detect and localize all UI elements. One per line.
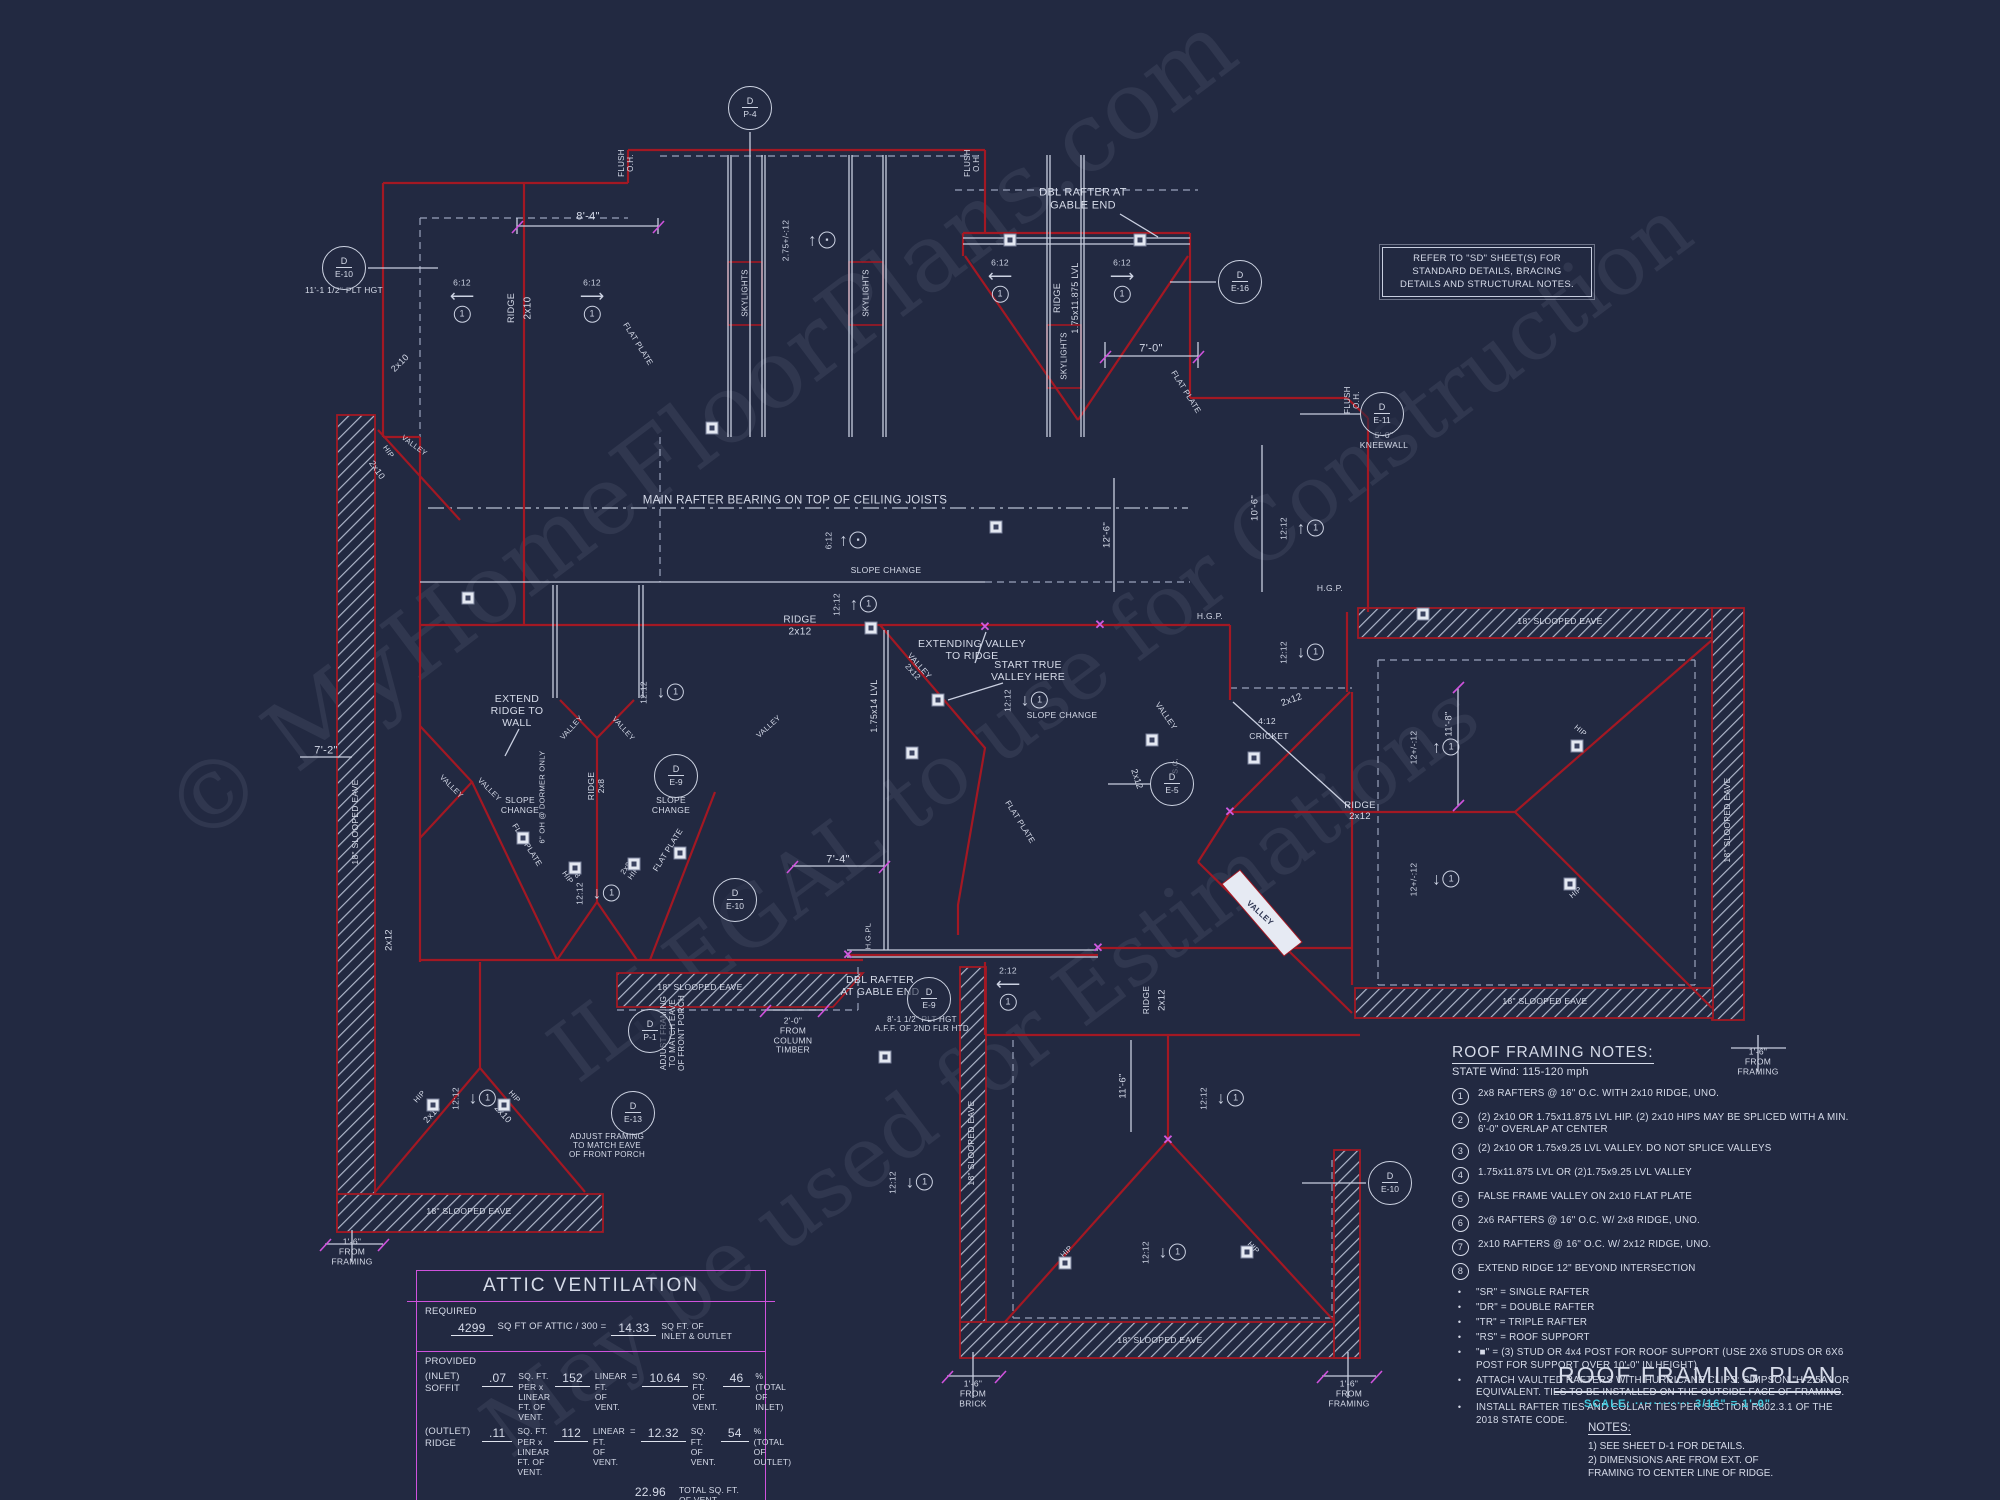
slope-arrow-icon: ⟶ (580, 290, 604, 304)
plan-label: 7'-4" (826, 854, 849, 867)
roof-note-item: 8EXTEND RIDGE 12" BEYOND INTERSECTION (1452, 1263, 1850, 1280)
slope-arrow-icon: ↓ (1432, 872, 1441, 886)
slope-arrow-icon: ↓ (1217, 1091, 1226, 1105)
plan-label: 1.75x11.875 LVL (1070, 262, 1080, 333)
plan-label: HIP (381, 444, 396, 460)
sheet-title: ROOF FRAMING PLAN (1554, 1362, 1841, 1393)
attic-cell: % (TOTAL OF OUTLET) (754, 1426, 792, 1467)
slope-annotation: 12:12↓1 (996, 692, 1048, 709)
roof-support-post-marker (1004, 234, 1017, 247)
plan-label: 18" SLOOPED EAVE (351, 779, 361, 864)
slope-annotation: 2.75+/-:12↑▪ (764, 232, 835, 249)
plan-label: 18" SLOOPED EAVE (1517, 617, 1602, 627)
roof-support-post-marker (706, 422, 719, 435)
junction-x-marker: ✕ (980, 619, 991, 635)
slope-arrow-icon: ↑ (850, 597, 859, 611)
rafter-type-circle: 1 (603, 885, 620, 902)
roof-framing-notes-numbered-list: 12x8 RAFTERS @ 16" O.C. WITH 2x10 RIDGE,… (1452, 1088, 1850, 1280)
sheet-notes-list: 1) SEE SHEET D-1 FOR DETAILS.2) DIMENSIO… (1588, 1440, 1932, 1481)
callout-code: E-16 (1231, 282, 1249, 293)
roof-note-number: 2 (1452, 1112, 1469, 1129)
slope-arrow-icon: ↑ (808, 233, 817, 247)
slope-annotation: 12+/-:12↑1 (1396, 739, 1459, 756)
roof-note-number: 5 (1452, 1191, 1469, 1208)
roof-support-post-marker (1134, 234, 1147, 247)
plan-label: 7'-2" (314, 745, 337, 758)
attic-cell: LINEAR FT. OF VENT. (595, 1371, 627, 1412)
roof-note-item: 2(2) 2x10 OR 1.75x11.875 LVL HIP. (2) 2x… (1452, 1112, 1850, 1136)
callout-code: E-10 (1381, 1183, 1399, 1194)
callout-sheet: D (742, 97, 759, 108)
roof-note-number: 4 (1452, 1167, 1469, 1184)
roof-support-post-marker (498, 1099, 511, 1112)
sheet-note-line: 2) DIMENSIONS ARE FROM EXT. OF FRAMING T… (1588, 1454, 1932, 1481)
roof-note-item: 62x6 RAFTERS @ 16" O.C. W/ 2x8 RIDGE, UN… (1452, 1215, 1850, 1232)
slope-arrow-icon: ⟵ (996, 978, 1020, 992)
slope-annotation: 12:12↓1 (1272, 644, 1324, 661)
attic-cell: SQ. FT. PER x LINEAR FT. OF VENT. (517, 1426, 549, 1477)
callout-code: E-11 (1373, 414, 1390, 425)
plan-label: 4:12 (1258, 717, 1276, 727)
plan-label: SKYLIGHTS (740, 269, 749, 317)
roof-framing-notes-subtitle: STATE Wind: 115-120 mph (1452, 1066, 1850, 1078)
plan-label: FLUSH O.H. (963, 149, 981, 177)
plan-label: 2x10 (389, 352, 411, 374)
roof-support-post-marker (1146, 734, 1159, 747)
sheet-notes-title: NOTES: (1588, 1422, 1631, 1435)
roof-support-post-marker (517, 832, 530, 845)
slope-annotation: 6:12⟶1 (1110, 258, 1134, 303)
plan-label: VALLEY (1245, 899, 1275, 928)
slope-arrow-icon: ↓ (469, 1091, 478, 1105)
plan-label: VALLEY (437, 773, 464, 800)
roof-support-post-marker (1248, 752, 1261, 765)
plan-label: 2x12 (1129, 768, 1145, 791)
slope-arrow-icon: ↑ (1297, 521, 1306, 535)
roof-support-post-marker (462, 592, 475, 605)
rafter-type-circle: 1 (454, 305, 471, 322)
plan-label: RIDGE 2x12 (783, 615, 816, 638)
plan-label: 8'-4" (576, 211, 599, 224)
plan-label: VALLEY (399, 434, 428, 458)
attic-cell: 12.32 (641, 1426, 686, 1441)
plan-label: 2x12 (1158, 989, 1169, 1011)
callout-sheet: D (642, 1020, 659, 1031)
title-block: ROOF FRAMING PLAN SCALE: ············ 3/… (1512, 1362, 1932, 1481)
roof-note-bullet: •"DR" = DOUBLE RAFTER (1452, 1302, 1850, 1314)
plan-label: 1'-6" FROM FRAMING (331, 1237, 372, 1266)
attic-provided-rows: (INLET) SOFFIT.07SQ. FT. PER x LINEAR FT… (425, 1371, 757, 1477)
slope-annotation: 12:12↑1 (825, 596, 877, 613)
plan-label: 1'-6" FROM FRAMING (1328, 1379, 1369, 1408)
attic-cell: 152 (555, 1371, 590, 1386)
callout-sheet: D (921, 988, 938, 999)
attic-required-value: 4299 (451, 1321, 493, 1336)
reference-note-line: DETAILS AND STRUCTURAL NOTES. (1387, 279, 1587, 292)
plan-label: 18" SLOOPED EAVE (1117, 1336, 1202, 1346)
detail-callout: DE-10 (322, 246, 366, 290)
slope-annotation: 6:12⟵1 (450, 278, 474, 323)
rafter-type-circle: ▪ (850, 532, 867, 549)
slope-arrow-icon: ↓ (1297, 645, 1306, 659)
roof-note-item: 12x8 RAFTERS @ 16" O.C. WITH 2x10 RIDGE,… (1452, 1088, 1850, 1105)
plan-label: START TRUE VALLEY HERE (991, 659, 1065, 683)
slope-annotation: 6:12⟵1 (988, 258, 1012, 303)
plan-label: VALLEY (559, 714, 585, 742)
rafter-type-circle: 1 (479, 1090, 496, 1107)
plan-label: HIP (1572, 723, 1588, 738)
plan-label: 12'-6" (1103, 522, 1114, 548)
attic-provided-section: PROVIDED (INLET) SOFFIT.07SQ. FT. PER x … (417, 1352, 765, 1500)
callout-code: E-5 (1165, 784, 1178, 795)
junction-x-marker: ✕ (1163, 1132, 1174, 1148)
roof-note-number: 7 (1452, 1239, 1469, 1256)
detail-callout: DP-4 (728, 86, 772, 130)
attic-cell: 46 (723, 1371, 751, 1386)
attic-provided-label: PROVIDED (425, 1356, 757, 1367)
blueprint-sheet: © MyHomeFloorPlans.comILLEGAL to use for… (0, 0, 2000, 1500)
plan-label: CRICKET (1249, 732, 1288, 742)
plan-label: H.G.P. (1197, 612, 1223, 622)
slope-annotation: 12:12↓1 (881, 1174, 933, 1191)
plan-label: RIDGE 2x12 (1344, 801, 1376, 823)
roof-support-post-marker (569, 862, 582, 875)
detail-callout: DE-9 (654, 754, 698, 798)
slope-arrow-icon: ↓ (657, 685, 666, 699)
slope-arrow-icon: ↓ (593, 886, 602, 900)
plan-label: FLUSH O.H. (617, 149, 635, 177)
reference-note-line: STANDARD DETAILS, BRACING (1387, 266, 1587, 279)
plan-label: 18" SLOOPED EAVE (426, 1207, 511, 1217)
attic-table-title: ATTIC VENTILATION (417, 1271, 765, 1302)
attic-cell: SQ. FT. OF VENT. (693, 1371, 718, 1412)
rafter-type-circle: 1 (1169, 1244, 1186, 1261)
plan-label: FLAT PLATE (621, 321, 655, 367)
rafter-type-circle: 1 (992, 285, 1009, 302)
detail-callout: DE-16 (1218, 260, 1262, 304)
reference-note-line: REFER TO "SD" SHEET(S) FOR (1387, 253, 1587, 266)
plan-label: FLAT PLATE (1169, 369, 1203, 415)
detail-callout: DE-9 (907, 977, 951, 1021)
roof-note-item: 41.75x11.875 LVL OR (2)1.75x9.25 LVL VAL… (1452, 1167, 1850, 1184)
rafter-type-circle: 1 (1443, 739, 1460, 756)
roof-support-post-marker (628, 858, 641, 871)
attic-cell: LINEAR FT. OF VENT. (593, 1426, 625, 1467)
plan-label: 18" SLOOPED EAVE (1502, 997, 1587, 1007)
plan-label: 7'-0" (1139, 343, 1162, 356)
plan-label: 2x10 (522, 297, 534, 320)
slope-arrow-icon: ↓ (906, 1175, 915, 1189)
callout-sheet: D (336, 257, 353, 268)
rafter-type-circle: 1 (1307, 644, 1324, 661)
roof-note-item: 72x10 RAFTERS @ 16" O.C. W/ 2x12 RIDGE, … (1452, 1239, 1850, 1256)
roof-note-item: 5FALSE FRAME VALLEY ON 2x10 FLAT PLATE (1452, 1191, 1850, 1208)
callout-sheet: D (668, 765, 685, 776)
attic-cell: 54 (721, 1426, 749, 1441)
detail-callout: DE-10 (713, 878, 757, 922)
slope-annotation: 12:12↓1 (1134, 1244, 1186, 1261)
plan-label: 18" SLOOPED EAVE (967, 1100, 977, 1185)
roof-note-number: 1 (1452, 1088, 1469, 1105)
plan-label: RIDGE (1142, 986, 1152, 1014)
roof-support-post-marker (879, 1051, 892, 1064)
plan-label: FLAT PLATE (1003, 799, 1037, 845)
roof-support-post-marker (1241, 1246, 1254, 1259)
slope-annotation: 2:12⟵1 (996, 966, 1020, 1011)
callout-sheet: D (727, 889, 744, 900)
roof-support-post-marker (990, 521, 1003, 534)
plan-label: 2x10 (367, 459, 387, 482)
slope-annotation: 12:12↓1 (1192, 1090, 1244, 1107)
callout-sheet: D (1164, 773, 1181, 784)
plan-label: DBL RAFTER AT GABLE END (1039, 186, 1127, 211)
slope-arrow-icon: ⟶ (1110, 270, 1134, 284)
plan-label: VALLEY (1153, 700, 1179, 731)
slope-annotation: 6:12↑▪ (819, 532, 866, 549)
plan-label: EXTEND RIDGE TO WALL (491, 693, 544, 729)
callout-sheet: D (1374, 403, 1391, 414)
roof-note-bullet: •"RS" = ROOF SUPPORT (1452, 1332, 1850, 1344)
plan-label: SLOPE CHANGE (501, 796, 539, 816)
slope-annotation: 12:12↑1 (1272, 520, 1324, 537)
rafter-type-circle: 1 (916, 1174, 933, 1191)
rafter-type-circle: 1 (1227, 1090, 1244, 1107)
plan-label: SKYLIGHTS (861, 269, 870, 317)
plan-label: ADJUST FRAMING TO MATCH EAVE OF FRONT PO… (569, 1132, 645, 1160)
attic-total-value: 22.96 (628, 1485, 673, 1500)
plan-label: 18" SLOOPED EAVE (657, 983, 742, 993)
roof-support-post-marker (1571, 740, 1584, 753)
callout-code: E-10 (335, 268, 353, 279)
slope-arrow-icon: ⟵ (450, 290, 474, 304)
plan-label: 10'-6" (1251, 495, 1262, 521)
sheet-scale: SCALE: ············ 3/16" = 1'-0" (1584, 1398, 1932, 1410)
slope-arrow-icon: ↑ (839, 533, 848, 547)
plan-label: 11'-6" (1119, 1073, 1130, 1098)
attic-cell: SQ. FT. OF VENT. (691, 1426, 716, 1467)
slope-arrow-icon: ↓ (1021, 693, 1030, 707)
roof-note-bullet: •"SR" = SINGLE RAFTER (1452, 1287, 1850, 1299)
callout-code: E-9 (669, 776, 682, 787)
plan-label: RIDGE (506, 293, 516, 323)
junction-x-marker: ✕ (1095, 617, 1106, 633)
rafter-type-circle: ▪ (819, 232, 836, 249)
slope-arrow-icon: ↓ (1159, 1245, 1168, 1259)
attic-cell: (INLET) SOFFIT (425, 1371, 477, 1394)
plan-label: MAIN RAFTER BEARING ON TOP OF CEILING JO… (643, 494, 948, 507)
rafter-type-circle: 1 (1031, 692, 1048, 709)
detail-callout: DE-13 (611, 1091, 655, 1135)
detail-callout: DE-11 (1360, 392, 1404, 436)
callout-sheet: D (1232, 271, 1249, 282)
junction-x-marker: ✕ (843, 947, 854, 963)
detail-callout: DP-1 (628, 1009, 672, 1053)
rafter-type-circle: 1 (1443, 871, 1460, 888)
slope-annotation: 12:12↓1 (568, 885, 620, 902)
plan-label: SLOPE CHANGE (652, 796, 690, 816)
attic-cell: % (TOTAL OF INLET) (755, 1371, 785, 1412)
roof-note-bullet: •"TR" = TRIPLE RAFTER (1452, 1317, 1850, 1329)
callout-code: E-9 (922, 999, 935, 1010)
attic-cell: SQ. FT. PER x LINEAR FT. OF VENT. (518, 1371, 550, 1422)
plan-label: 2x12 (385, 929, 396, 951)
callout-code: E-10 (726, 900, 744, 911)
callout-code: P-4 (743, 108, 756, 119)
reference-note-box: REFER TO "SD" SHEET(S) FOR STANDARD DETA… (1382, 247, 1592, 297)
junction-x-marker: ✕ (1225, 804, 1236, 820)
plan-label: FLUSH O.H. (1343, 386, 1361, 414)
plan-label: 11'-8" (1445, 711, 1456, 736)
plan-label: VALLEY (475, 776, 502, 803)
detail-callout: DE-5 (1150, 762, 1194, 806)
attic-provided-row: (INLET) SOFFIT.07SQ. FT. PER x LINEAR FT… (425, 1371, 757, 1422)
rafter-type-circle: 1 (1000, 993, 1017, 1010)
rafter-type-circle: 1 (1307, 520, 1324, 537)
plan-label: RIDGE 2x8 (587, 772, 607, 800)
plan-label: 1.75x14 LVL (869, 679, 879, 732)
rafter-type-circle: 1 (584, 305, 601, 322)
plan-label: RIDGE (1052, 283, 1062, 313)
callout-code: E-13 (624, 1113, 642, 1124)
callout-code: P-1 (643, 1031, 656, 1042)
attic-cell: 112 (554, 1426, 588, 1441)
roof-support-post-marker (932, 694, 945, 707)
attic-cell: = (632, 1371, 638, 1382)
plan-label: 1'-6" FROM BRICK (959, 1379, 986, 1408)
attic-provided-row: (OUTLET) RIDGE.11SQ. FT. PER x LINEAR FT… (425, 1426, 757, 1477)
plan-label: 2'-0" FROM COLUMN TIMBER (774, 1016, 813, 1055)
plan-label: H.G.P. (1317, 584, 1343, 594)
plan-label: VALLEY (610, 715, 636, 743)
rafter-type-circle: 1 (667, 684, 684, 701)
plan-label: VALLEY (755, 714, 783, 740)
slope-arrow-icon: ↑ (1432, 740, 1441, 754)
roof-support-post-marker (1417, 608, 1430, 621)
slope-arrow-icon: ⟵ (988, 270, 1012, 284)
roof-note-number: 8 (1452, 1263, 1469, 1280)
attic-total-label: TOTAL SQ. FT. OF VENT. (679, 1485, 739, 1500)
sheet-note-line: 1) SEE SHEET D-1 FOR DETAILS. (1588, 1440, 1932, 1454)
roof-support-post-marker (865, 622, 878, 635)
roof-note-number: 6 (1452, 1215, 1469, 1232)
rafter-type-circle: 1 (860, 596, 877, 613)
roof-support-post-marker (674, 847, 687, 860)
attic-cell: .11 (482, 1426, 512, 1441)
roof-note-number: 3 (1452, 1143, 1469, 1160)
roof-support-post-marker (906, 747, 919, 760)
attic-ventilation-table: ATTIC VENTILATION REQUIRED 4299 SQ FT OF… (416, 1270, 766, 1500)
plan-label: SLOPE CHANGE (1027, 711, 1098, 721)
attic-required-unit: SQ FT. OF INLET & OUTLET (661, 1321, 732, 1341)
slope-annotation: 12+/-:12↓1 (1396, 871, 1459, 888)
plan-label: 18" SLOOPED EAVE (1723, 777, 1733, 862)
attic-required-mid: SQ FT OF ATTIC / 300 = (498, 1321, 607, 1332)
plan-label: SLOPE CHANGE (851, 566, 922, 576)
detail-callout: DE-10 (1368, 1161, 1412, 1205)
roof-support-post-marker (1059, 1257, 1072, 1270)
slope-annotation: 12:12↓1 (444, 1090, 496, 1107)
plan-label: HIP (412, 1089, 427, 1105)
roof-support-post-marker (427, 1099, 440, 1112)
slope-annotation: 6:12⟶1 (580, 278, 604, 323)
plan-label: H.G.PL (865, 923, 874, 949)
plan-label: 2x12 (1280, 692, 1304, 710)
attic-cell: .07 (482, 1371, 513, 1386)
roof-framing-notes-title: ROOF FRAMING NOTES: (1452, 1044, 1654, 1064)
roof-support-post-marker (1564, 878, 1577, 891)
attic-required-section: REQUIRED 4299 SQ FT OF ATTIC / 300 = 14.… (417, 1302, 765, 1352)
attic-required-result: 14.33 (611, 1321, 656, 1336)
roof-note-item: 3(2) 2x10 OR 1.75x9.25 LVL VALLEY. DO NO… (1452, 1143, 1850, 1160)
slope-annotation: 12:12↓1 (632, 684, 684, 701)
plan-label: SKYLIGHTS (1059, 332, 1068, 380)
junction-x-marker: ✕ (1093, 940, 1104, 956)
rafter-type-circle: 1 (1114, 285, 1131, 302)
callout-sheet: D (1382, 1172, 1399, 1183)
attic-cell: 10.64 (642, 1371, 687, 1386)
attic-cell: (OUTLET) RIDGE (425, 1426, 477, 1449)
attic-cell: = (630, 1426, 636, 1437)
plan-label: 6" OH @ DORMER ONLY (539, 751, 548, 844)
callout-sheet: D (625, 1102, 642, 1113)
attic-required-label: REQUIRED (425, 1306, 757, 1317)
